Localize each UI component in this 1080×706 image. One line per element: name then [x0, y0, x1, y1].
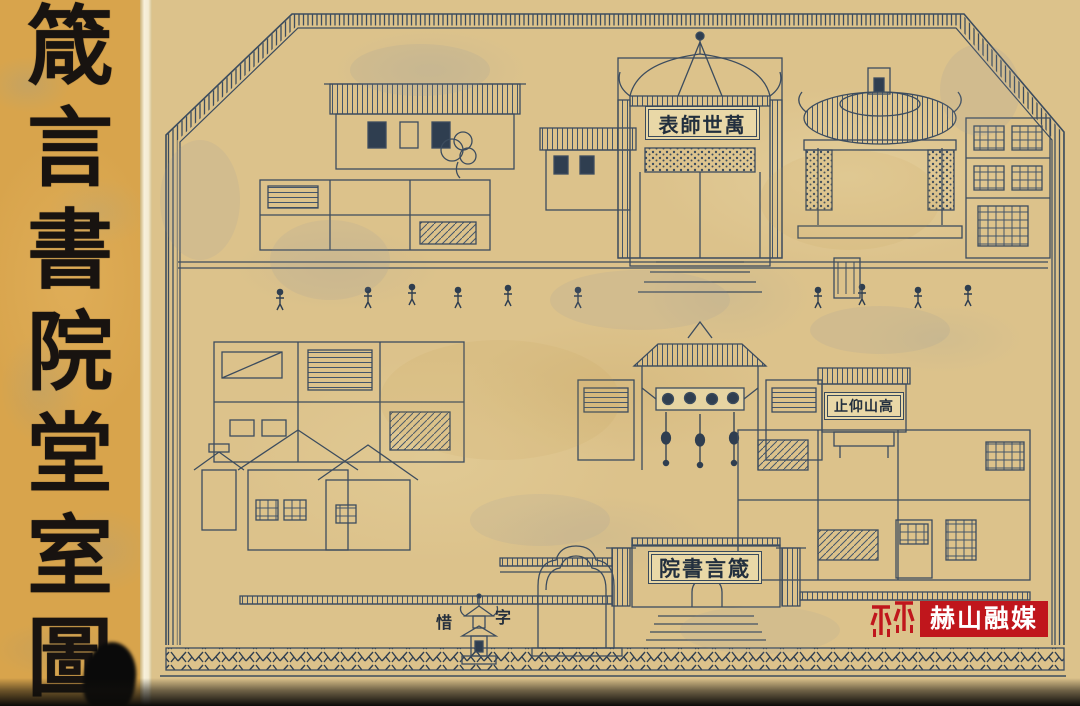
heshan-logo-icon — [868, 595, 918, 643]
shrine-hall — [618, 32, 782, 266]
main-gate-plaque: 院書言箴 — [648, 551, 762, 584]
photo-bottom-shadow — [0, 678, 1080, 706]
pagoda-char-right: 字 — [495, 604, 511, 628]
shrine-plaque: 表師世萬 — [645, 106, 760, 140]
right-upper-rooms — [966, 118, 1050, 258]
heshan-media-watermark: 赫山融媒 — [868, 594, 1054, 644]
watermark-text: 赫山融媒 — [920, 601, 1048, 637]
side-hall-plaque: 止仰山高 — [824, 392, 904, 420]
photographed-academy-diagram: 箴 言 書 院 堂 室 圖 — [0, 0, 1080, 706]
pagoda-char-left: 惜 — [436, 609, 452, 633]
